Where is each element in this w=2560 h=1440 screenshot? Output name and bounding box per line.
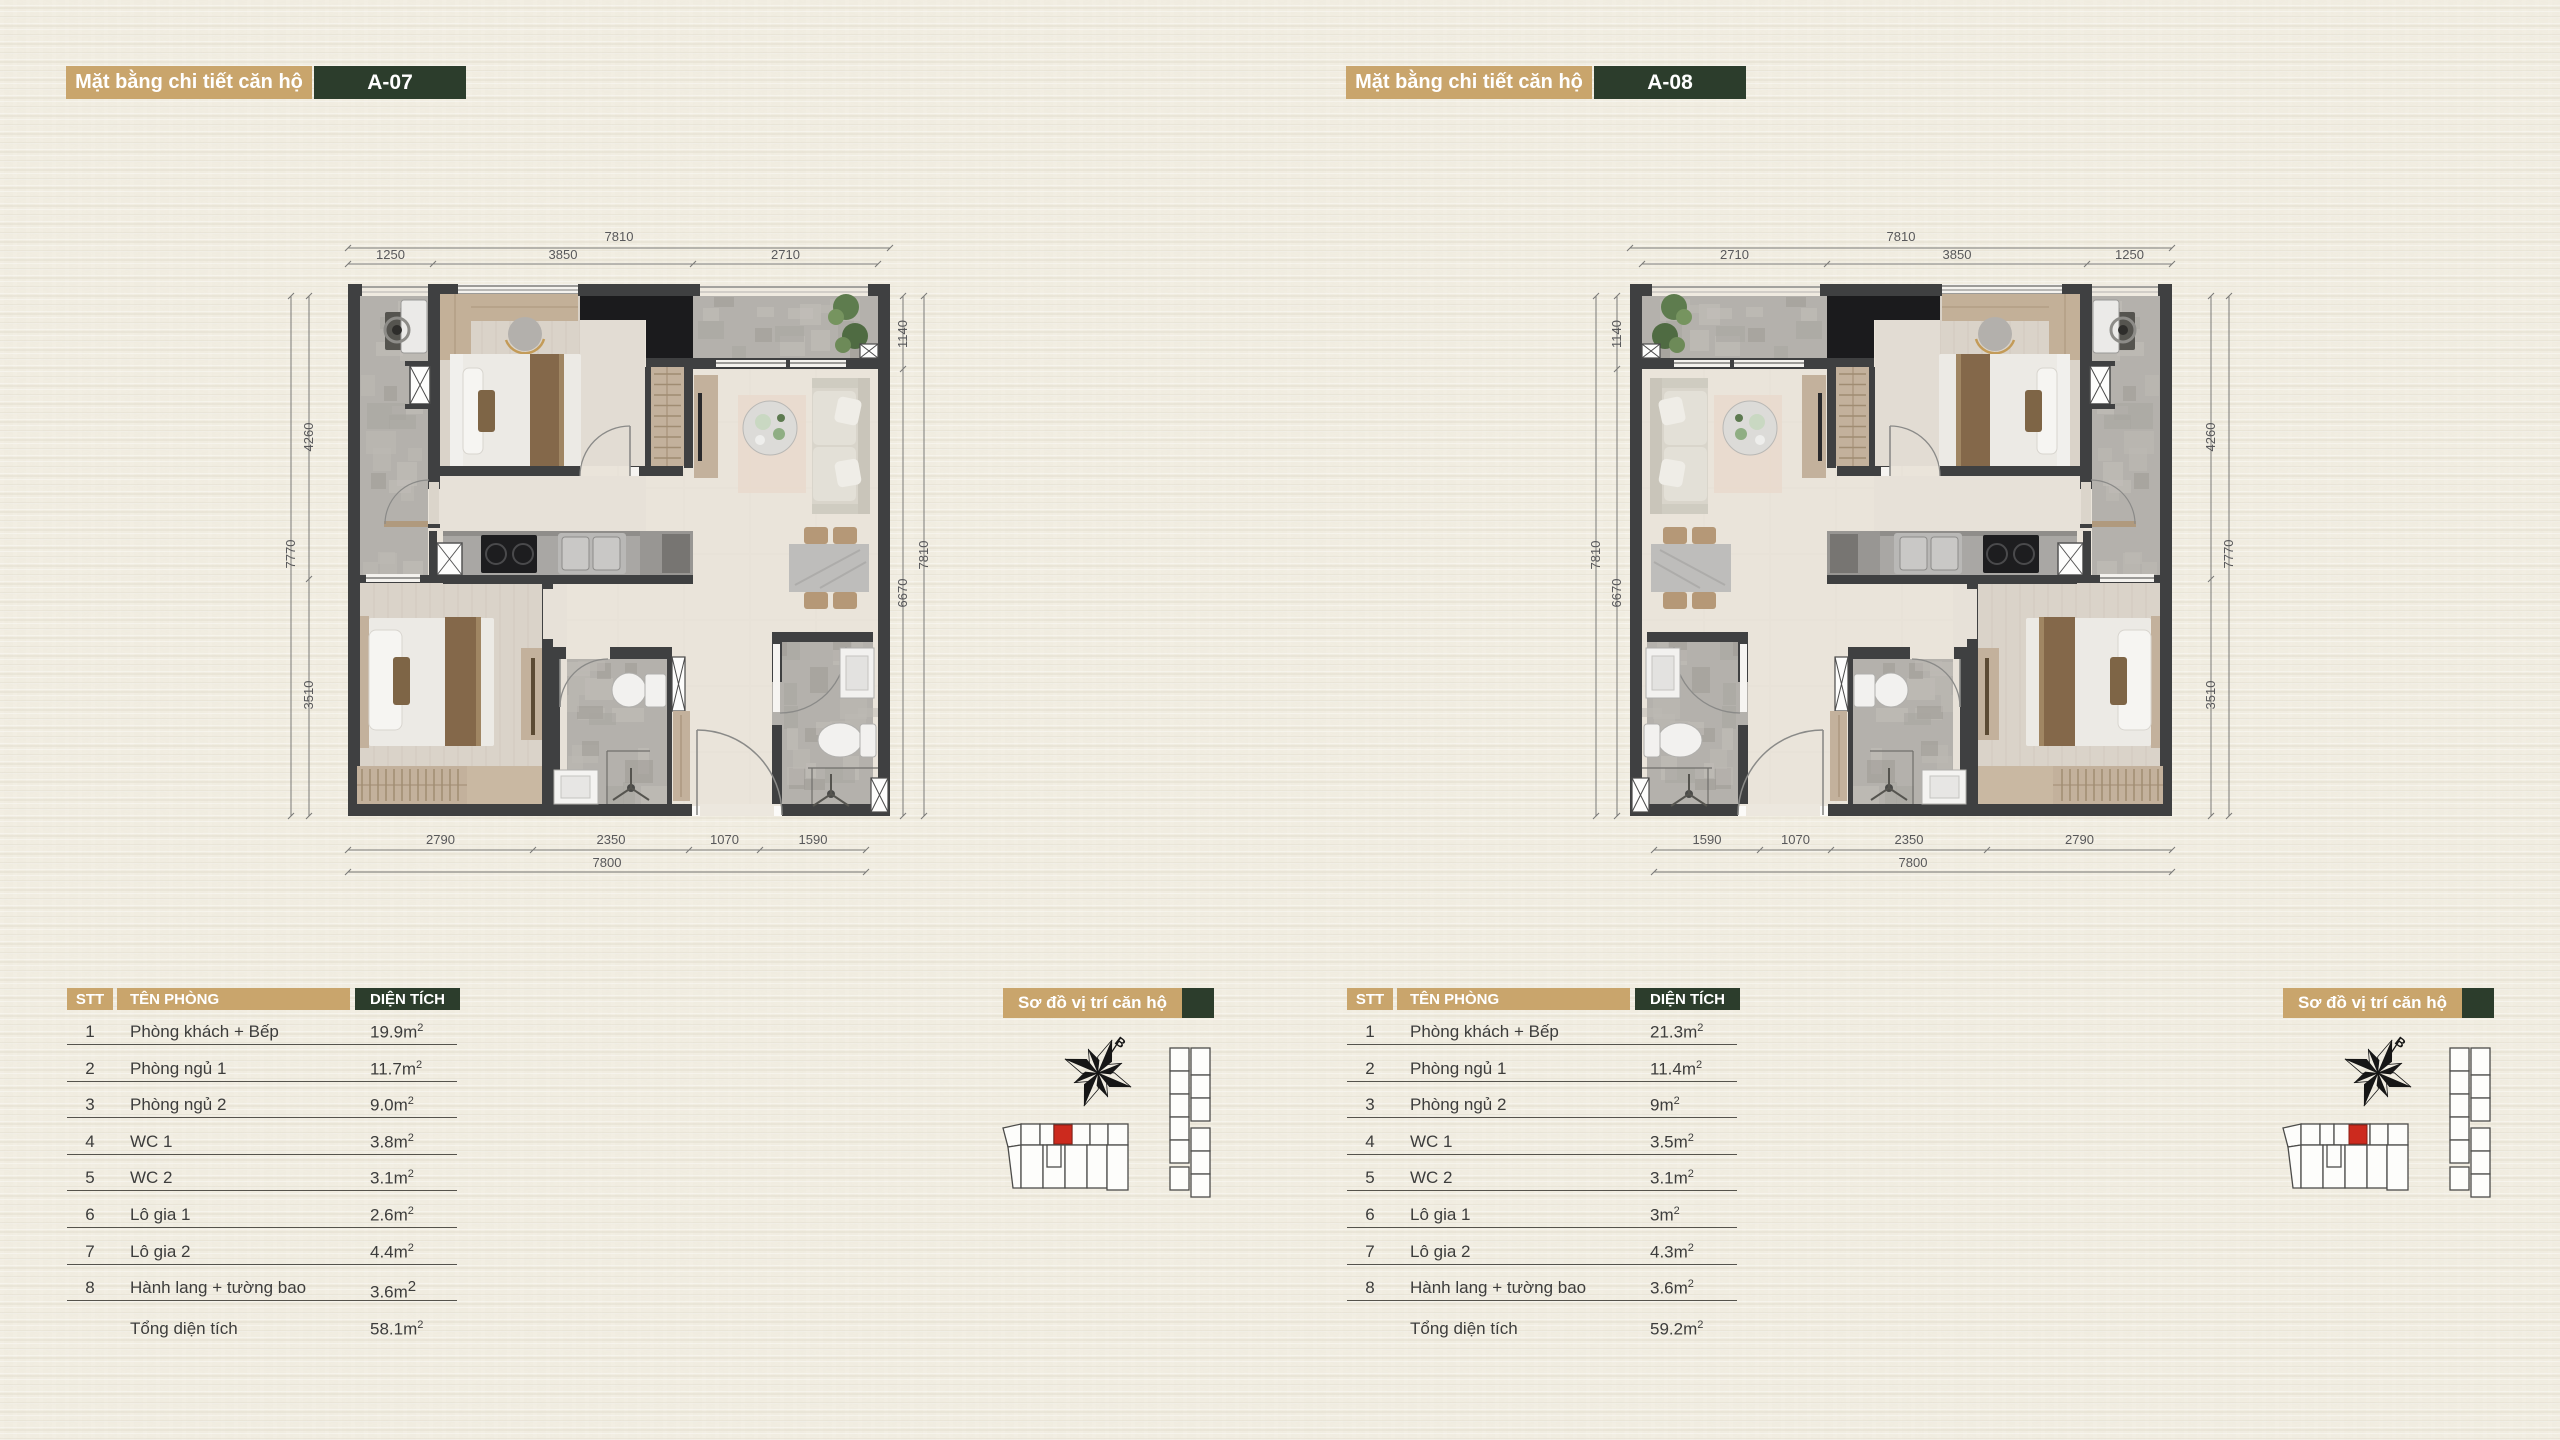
svg-text:1250: 1250 — [2115, 247, 2144, 262]
svg-text:6670: 6670 — [1609, 579, 1624, 608]
svg-text:7810: 7810 — [1887, 229, 1916, 244]
svg-text:3510: 3510 — [2203, 681, 2218, 710]
svg-text:3850: 3850 — [1943, 247, 1972, 262]
svg-text:6670: 6670 — [895, 579, 910, 608]
svg-text:1070: 1070 — [710, 832, 739, 847]
svg-text:2350: 2350 — [597, 832, 626, 847]
svg-text:7810: 7810 — [1588, 541, 1603, 570]
svg-text:7800: 7800 — [1899, 855, 1928, 870]
svg-text:2710: 2710 — [1720, 247, 1749, 262]
svg-text:2790: 2790 — [2065, 832, 2094, 847]
svg-text:7770: 7770 — [283, 540, 298, 569]
svg-text:7770: 7770 — [2221, 540, 2236, 569]
svg-text:7800: 7800 — [593, 855, 622, 870]
svg-text:4260: 4260 — [301, 423, 316, 452]
svg-text:3510: 3510 — [301, 681, 316, 710]
svg-text:4260: 4260 — [2203, 423, 2218, 452]
svg-text:1140: 1140 — [895, 320, 910, 348]
svg-text:1070: 1070 — [1781, 832, 1810, 847]
svg-text:1250: 1250 — [376, 247, 405, 262]
svg-text:7810: 7810 — [605, 229, 634, 244]
svg-text:1590: 1590 — [799, 832, 828, 847]
svg-text:2710: 2710 — [771, 247, 800, 262]
svg-text:1140: 1140 — [1609, 320, 1624, 348]
svg-text:7810: 7810 — [916, 541, 931, 570]
svg-text:1590: 1590 — [1693, 832, 1722, 847]
svg-text:3850: 3850 — [549, 247, 578, 262]
svg-text:2350: 2350 — [1895, 832, 1924, 847]
svg-text:2790: 2790 — [426, 832, 455, 847]
